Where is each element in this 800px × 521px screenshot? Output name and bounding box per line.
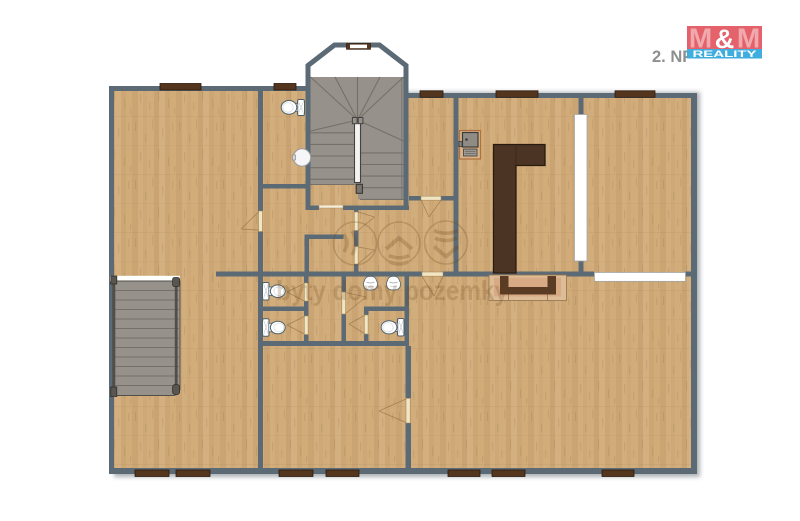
- svg-text:byty domy pozemky: byty domy pozemky: [276, 275, 508, 306]
- svg-text:REALITY: REALITY: [693, 49, 757, 59]
